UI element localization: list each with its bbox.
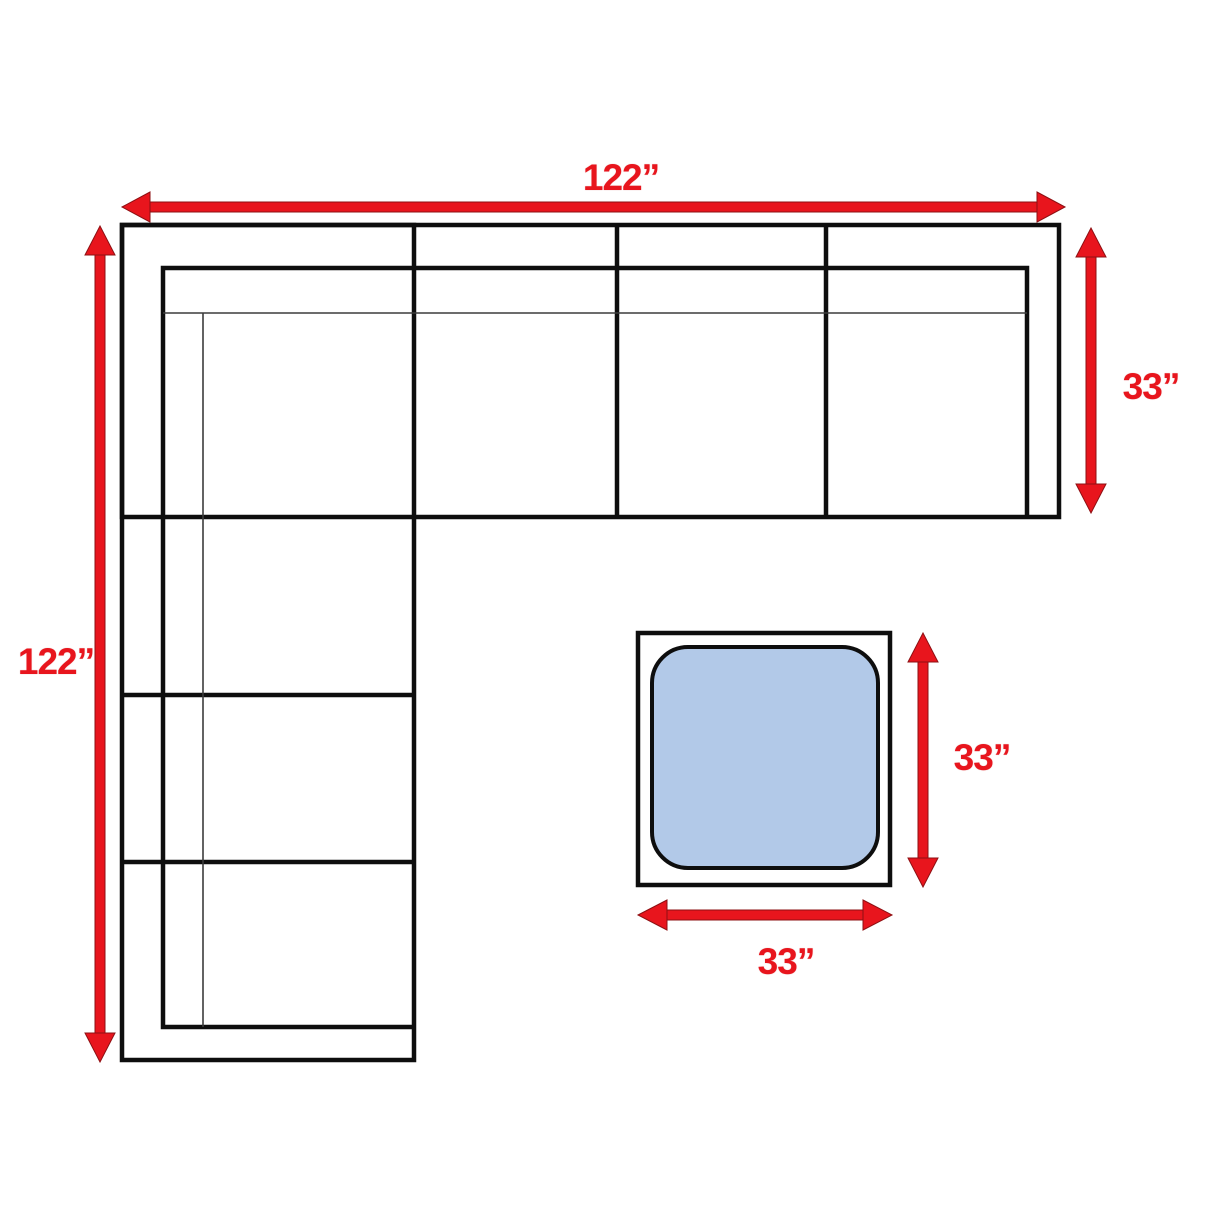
sofa-inner-back-line [163, 268, 1027, 1027]
ottoman-depth-arrow [908, 633, 938, 887]
section-depth-arrow [1076, 228, 1106, 513]
ottoman-depth-label: 33” [954, 737, 1011, 779]
sofa-cushion-lines [163, 313, 1027, 1027]
ottoman-width-label: 33” [758, 941, 815, 983]
overall-depth-label: 122” [18, 641, 94, 683]
overall-width-label: 122” [583, 157, 659, 199]
ottoman-cushion [652, 647, 878, 868]
section-depth-label: 33” [1123, 366, 1180, 408]
ottoman-width-arrow [638, 900, 892, 930]
ottoman [638, 633, 890, 885]
sofa-dimension-diagram: 122” 122” 33” 33” 33” [0, 0, 1214, 1214]
sofa-left-section [122, 225, 414, 1060]
